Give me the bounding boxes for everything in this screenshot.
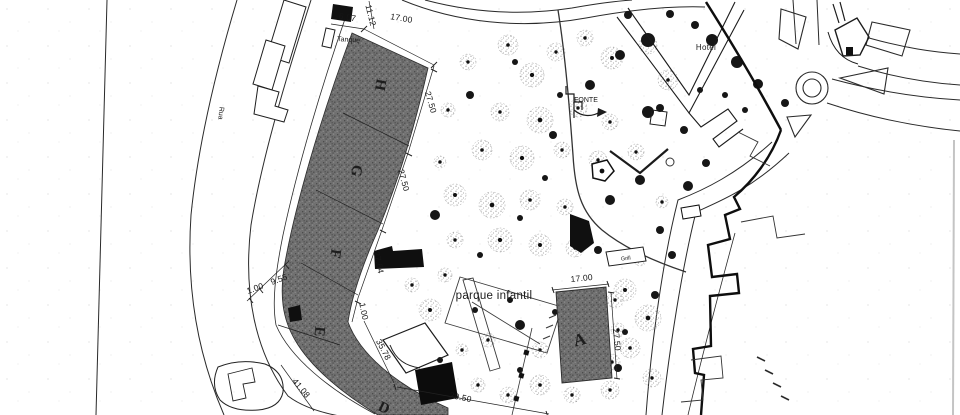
tree-icon bbox=[634, 150, 637, 153]
tree-icon bbox=[506, 393, 509, 396]
tree-icon bbox=[515, 320, 525, 330]
playground-label: parque infantil bbox=[456, 290, 533, 302]
tree-icon bbox=[490, 203, 495, 208]
house-core bbox=[846, 47, 853, 55]
tree-icon bbox=[453, 238, 456, 241]
tree-icon bbox=[668, 251, 676, 259]
tree-icon bbox=[646, 316, 651, 321]
tree-icon bbox=[520, 156, 524, 160]
tree-icon bbox=[554, 50, 557, 53]
tree-icon bbox=[460, 348, 463, 351]
tree-icon bbox=[528, 198, 532, 202]
tree-icon bbox=[576, 106, 579, 109]
tree-icon bbox=[650, 376, 653, 379]
tree-icon bbox=[683, 181, 693, 191]
tree-icon bbox=[466, 91, 474, 99]
boundary-hut bbox=[681, 205, 701, 219]
tree-icon bbox=[560, 148, 563, 151]
tree-icon bbox=[660, 200, 663, 203]
tree-icon bbox=[443, 273, 446, 276]
tree-icon bbox=[542, 175, 548, 181]
tree-icon bbox=[538, 383, 542, 387]
tree-icon bbox=[594, 246, 602, 254]
tree-icon bbox=[538, 243, 542, 247]
tree-icon bbox=[608, 388, 611, 391]
tree-icon bbox=[506, 43, 510, 47]
tree-icon bbox=[428, 308, 432, 312]
tree-icon bbox=[722, 92, 728, 98]
tree-icon bbox=[563, 205, 566, 208]
tree-icon bbox=[651, 291, 659, 299]
tree-icon bbox=[583, 36, 586, 39]
tree-icon bbox=[742, 107, 748, 113]
tree-icon bbox=[656, 226, 664, 234]
tree-icon bbox=[622, 329, 628, 335]
tree-icon bbox=[486, 338, 489, 341]
tree-icon bbox=[691, 21, 699, 29]
tree-icon bbox=[605, 195, 615, 205]
tree-icon bbox=[410, 283, 413, 286]
tree-icon bbox=[613, 298, 616, 301]
tree-icon bbox=[549, 131, 557, 139]
tree-icon bbox=[498, 110, 501, 113]
tree-icon bbox=[477, 252, 483, 258]
tree-icon bbox=[666, 78, 670, 82]
tree-icon bbox=[430, 210, 440, 220]
tree-icon bbox=[466, 60, 469, 63]
tree-icon bbox=[781, 99, 789, 107]
tree-icon bbox=[530, 73, 534, 77]
tree-icon bbox=[517, 215, 523, 221]
tree-icon bbox=[610, 56, 614, 60]
site-plan-drawing: Rua Tanque Hotel FONTE parque infantil G… bbox=[0, 0, 960, 415]
tree-icon bbox=[608, 120, 611, 123]
tree-icon bbox=[512, 59, 518, 65]
tree-icon bbox=[623, 288, 627, 292]
tree-icon bbox=[680, 126, 688, 134]
tree-icon bbox=[628, 346, 632, 350]
tree-icon bbox=[446, 108, 449, 111]
tree-icon bbox=[476, 383, 479, 386]
tree-icon bbox=[438, 160, 441, 163]
tree-icon bbox=[615, 50, 625, 60]
tree-icon bbox=[585, 80, 595, 90]
scan-artifact-line bbox=[953, 140, 954, 415]
tree-icon bbox=[570, 393, 573, 396]
fountain-label: FONTE bbox=[574, 97, 598, 104]
tree-icon bbox=[702, 159, 710, 167]
tree-icon bbox=[557, 92, 563, 98]
tree-icon bbox=[596, 158, 599, 161]
tree-icon bbox=[614, 364, 622, 372]
plot-label-e: E bbox=[310, 326, 327, 338]
tree-icon bbox=[498, 238, 502, 242]
street-label: Rua bbox=[216, 106, 224, 120]
site-plan-scan: Rua Tanque Hotel FONTE parque infantil G… bbox=[0, 0, 960, 415]
tree-icon bbox=[635, 175, 645, 185]
hotel-label: Hotel bbox=[696, 43, 716, 52]
tree-icon bbox=[641, 33, 655, 47]
grill-label: Grill bbox=[621, 255, 631, 262]
tree-icon bbox=[453, 193, 457, 197]
tree-icon bbox=[480, 148, 484, 152]
building-filled bbox=[288, 305, 302, 322]
tree-icon bbox=[666, 10, 674, 18]
tree-icon bbox=[437, 357, 443, 363]
tree-icon bbox=[538, 118, 543, 123]
